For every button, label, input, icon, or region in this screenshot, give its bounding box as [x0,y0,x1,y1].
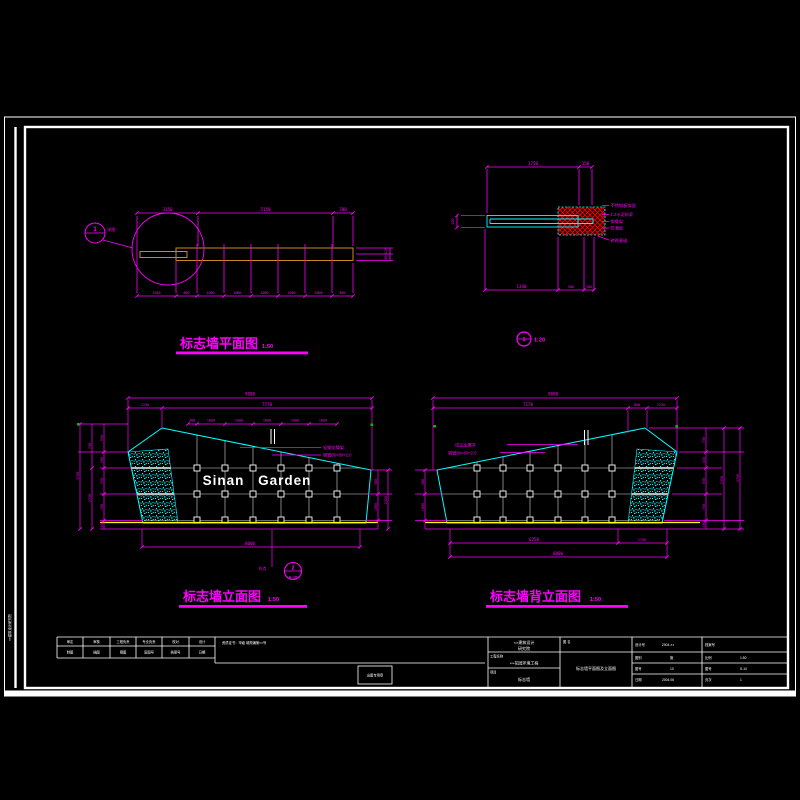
dim-label: 445 [702,457,706,463]
material-label: 不锈钢板饰面 [611,202,636,209]
dim-label: 1000 [319,419,327,423]
design-no-value: 2004-×× [662,643,674,647]
dim-label: 950 [100,435,104,441]
dim-label: 3750 [76,472,80,480]
callout-sheet: A-10 [289,575,298,580]
dim-label: 1230 [657,403,665,407]
sig-cell: 审核 [93,639,100,644]
dim-label: 1000 [291,419,299,423]
frame-margin-text: ××建筑设计研究院 [7,613,12,641]
dim-label: 400 [100,521,104,527]
date-value: 2004.06 [662,678,674,682]
annotation: 轻钢龙骨架 [323,444,344,451]
project-name: ××花园环境工程 [510,660,539,666]
material-label: 防潮层 [611,225,624,232]
certificate-text: 资质证书：甲级 城规编第××号 [222,640,267,645]
dim-label: 1750 [638,538,646,542]
plan-scale: 1:50 [262,344,273,350]
sig-cell: 描图 [93,650,100,655]
material-label: 钢骨架 [611,218,624,225]
page-label: 页次 [705,677,712,682]
material-label: 1:2水泥砂浆 [611,211,634,218]
sig-cell: 档案号 [171,650,182,655]
dim-label: 1000 [374,503,378,511]
dim-label: 3750 [736,474,740,482]
dwg-no-value: S-10 [740,667,747,671]
callout-number: 2 [291,566,294,572]
dim-label: 9000 [245,392,256,397]
dim-label: 2320 [384,496,388,504]
dim-label: 2350 [720,476,724,484]
detail-bubble-number: 1 [522,337,525,343]
company-name: ××建筑设计 [514,639,535,645]
dim-label: 1000 [207,419,215,423]
dim-label: 1000 [235,419,243,423]
plan-title-underline [176,352,308,355]
plan-title: 标志墙平面图 [179,336,258,351]
front-title-underline [179,605,307,608]
project-label: 工程名称 [490,654,504,659]
plan-dimensions [85,211,393,297]
item-name: 标志墙 [518,676,530,682]
front-section-mark [271,429,275,444]
scale-label: 比例 [705,655,712,660]
dim-label: 750 [702,504,706,510]
dim-label: 700 [100,504,104,510]
dim-label: 1340 [516,284,527,289]
material-label: 砖砌基础 [611,237,628,244]
dim-label: 150 [582,161,590,166]
annotation: 成品金属字 [455,442,476,449]
dim-label: 200 [451,218,455,224]
sheet-no-label: 图号 [635,666,642,671]
dim-label: 1000 [206,291,214,295]
archive-no-label: 档案号 [705,642,716,647]
dim-label: 580 [421,479,425,485]
plan-callout-label: 详图 [107,226,115,233]
dim-label: 950 [702,478,706,484]
back-title-underline [486,605,628,608]
dim-label: 6250 [529,537,540,542]
dim-label: 1000 [421,503,425,511]
category-value: 施 [670,655,674,660]
dim-label: 1000 [260,291,268,295]
dwg-no-label: 图号 [705,666,712,671]
dim-label: 500 [568,285,574,289]
category-label: 图别 [635,655,642,660]
sig-cell: 日期 [199,650,206,655]
drawing-name-label: 图 名 [563,639,571,644]
dim-label: 1000 [314,291,322,295]
company-name-2: 研究院 [518,645,530,651]
title-block-lines [57,637,788,688]
dim-label: 1230 [141,403,149,407]
dim-label: 700 [339,207,347,212]
dim-label: 1000 [263,419,271,423]
section-detail: 1750 150 200 1340 500 300 不锈钢板饰面 1:2水泥砂浆… [451,161,636,346]
sig-cell: 晒图 [120,650,127,655]
dim-label: 300 [586,285,592,289]
dim-label: 730 [88,443,92,449]
detail-scale: 1:20 [534,338,545,344]
plan-wall-outline [140,248,353,261]
date-label: 日期 [635,677,642,682]
dim-label: 2330 [88,494,92,502]
sig-cell: 审定 [67,639,74,644]
sig-cell: 工程负责 [116,639,130,644]
front-sign-text: Sinan Garden [203,473,312,488]
sig-cell: 制图 [67,650,74,655]
callout-label: 节点 [258,566,266,572]
detail-dimensions [455,165,609,346]
sheet-no-value: 10 [670,667,674,671]
page-value: 1 [740,678,742,682]
sig-cell: 底图号 [144,650,155,655]
sig-cell: 设计 [199,639,206,644]
sig-cell: 专业负责 [142,639,156,644]
annotation: 钢管80×80×2.0 [448,450,477,457]
dim-label: 1750 [528,161,539,166]
scale-value: 1:50 [740,656,747,660]
front-title: 标志墙立面图 [182,589,261,604]
dim-label: 120 [384,248,388,254]
dim-label: 5150 [260,207,271,212]
dim-label: 8000 [245,541,256,546]
dim-label: 8000 [553,551,564,556]
back-dimensions [415,396,744,558]
dim-label: 1340 [152,291,160,295]
plan-view: 3150 5150 700 1340 800 1000 1000 1000 10… [85,207,393,354]
dim-label: 800 [339,291,345,295]
dim-label: 580 [100,457,104,463]
plan-callout-number: 1 [93,227,97,233]
dim-label: 580 [374,479,378,485]
back-grid [442,435,660,521]
dim-label: 1000 [287,291,295,295]
drawing-name: 标志墙平面图及立面图 [576,665,616,671]
front-elevation: Sinan Garden [76,392,392,608]
snap-markers [434,425,679,428]
dim-label: 80 [384,255,388,259]
cad-drawing-canvas: ××建筑设计研究院 [0,0,800,800]
back-title: 标志墙背立面图 [489,589,581,604]
dim-label: 350 [100,478,104,484]
detail-masonry-hatch [558,207,605,235]
back-elevation: 9000 7170 600 1230 580 1000 730 445 950 … [415,392,744,608]
design-no-label: 设计号 [635,642,646,647]
dim-label: 280 [702,521,706,527]
item-label: 项目 [490,671,497,675]
sig-cell: 校对 [172,639,179,644]
front-scale: 1:50 [268,597,279,603]
dim-label: 7770 [262,402,273,407]
dim-label: 600 [634,403,640,407]
dim-label: 800 [183,291,189,295]
dim-label: 9000 [548,392,559,397]
stamp-box-text: 出图专用章 [367,673,384,678]
annotation: 钢管80×80×2.0 [323,452,352,459]
dim-label: 730 [702,437,706,443]
back-scale: 1:50 [590,597,601,603]
dim-label: 3150 [162,207,173,212]
dim-label: 1000 [233,291,241,295]
title-block: 审定 审核 工程负责 专业负责 校对 设计 制图 描图 晒图 底图号 档案号 日… [57,637,788,688]
dim-label: 300 [189,419,195,423]
cad-sheet: ××建筑设计研究院 [0,0,800,800]
dim-label: 7170 [523,402,534,407]
